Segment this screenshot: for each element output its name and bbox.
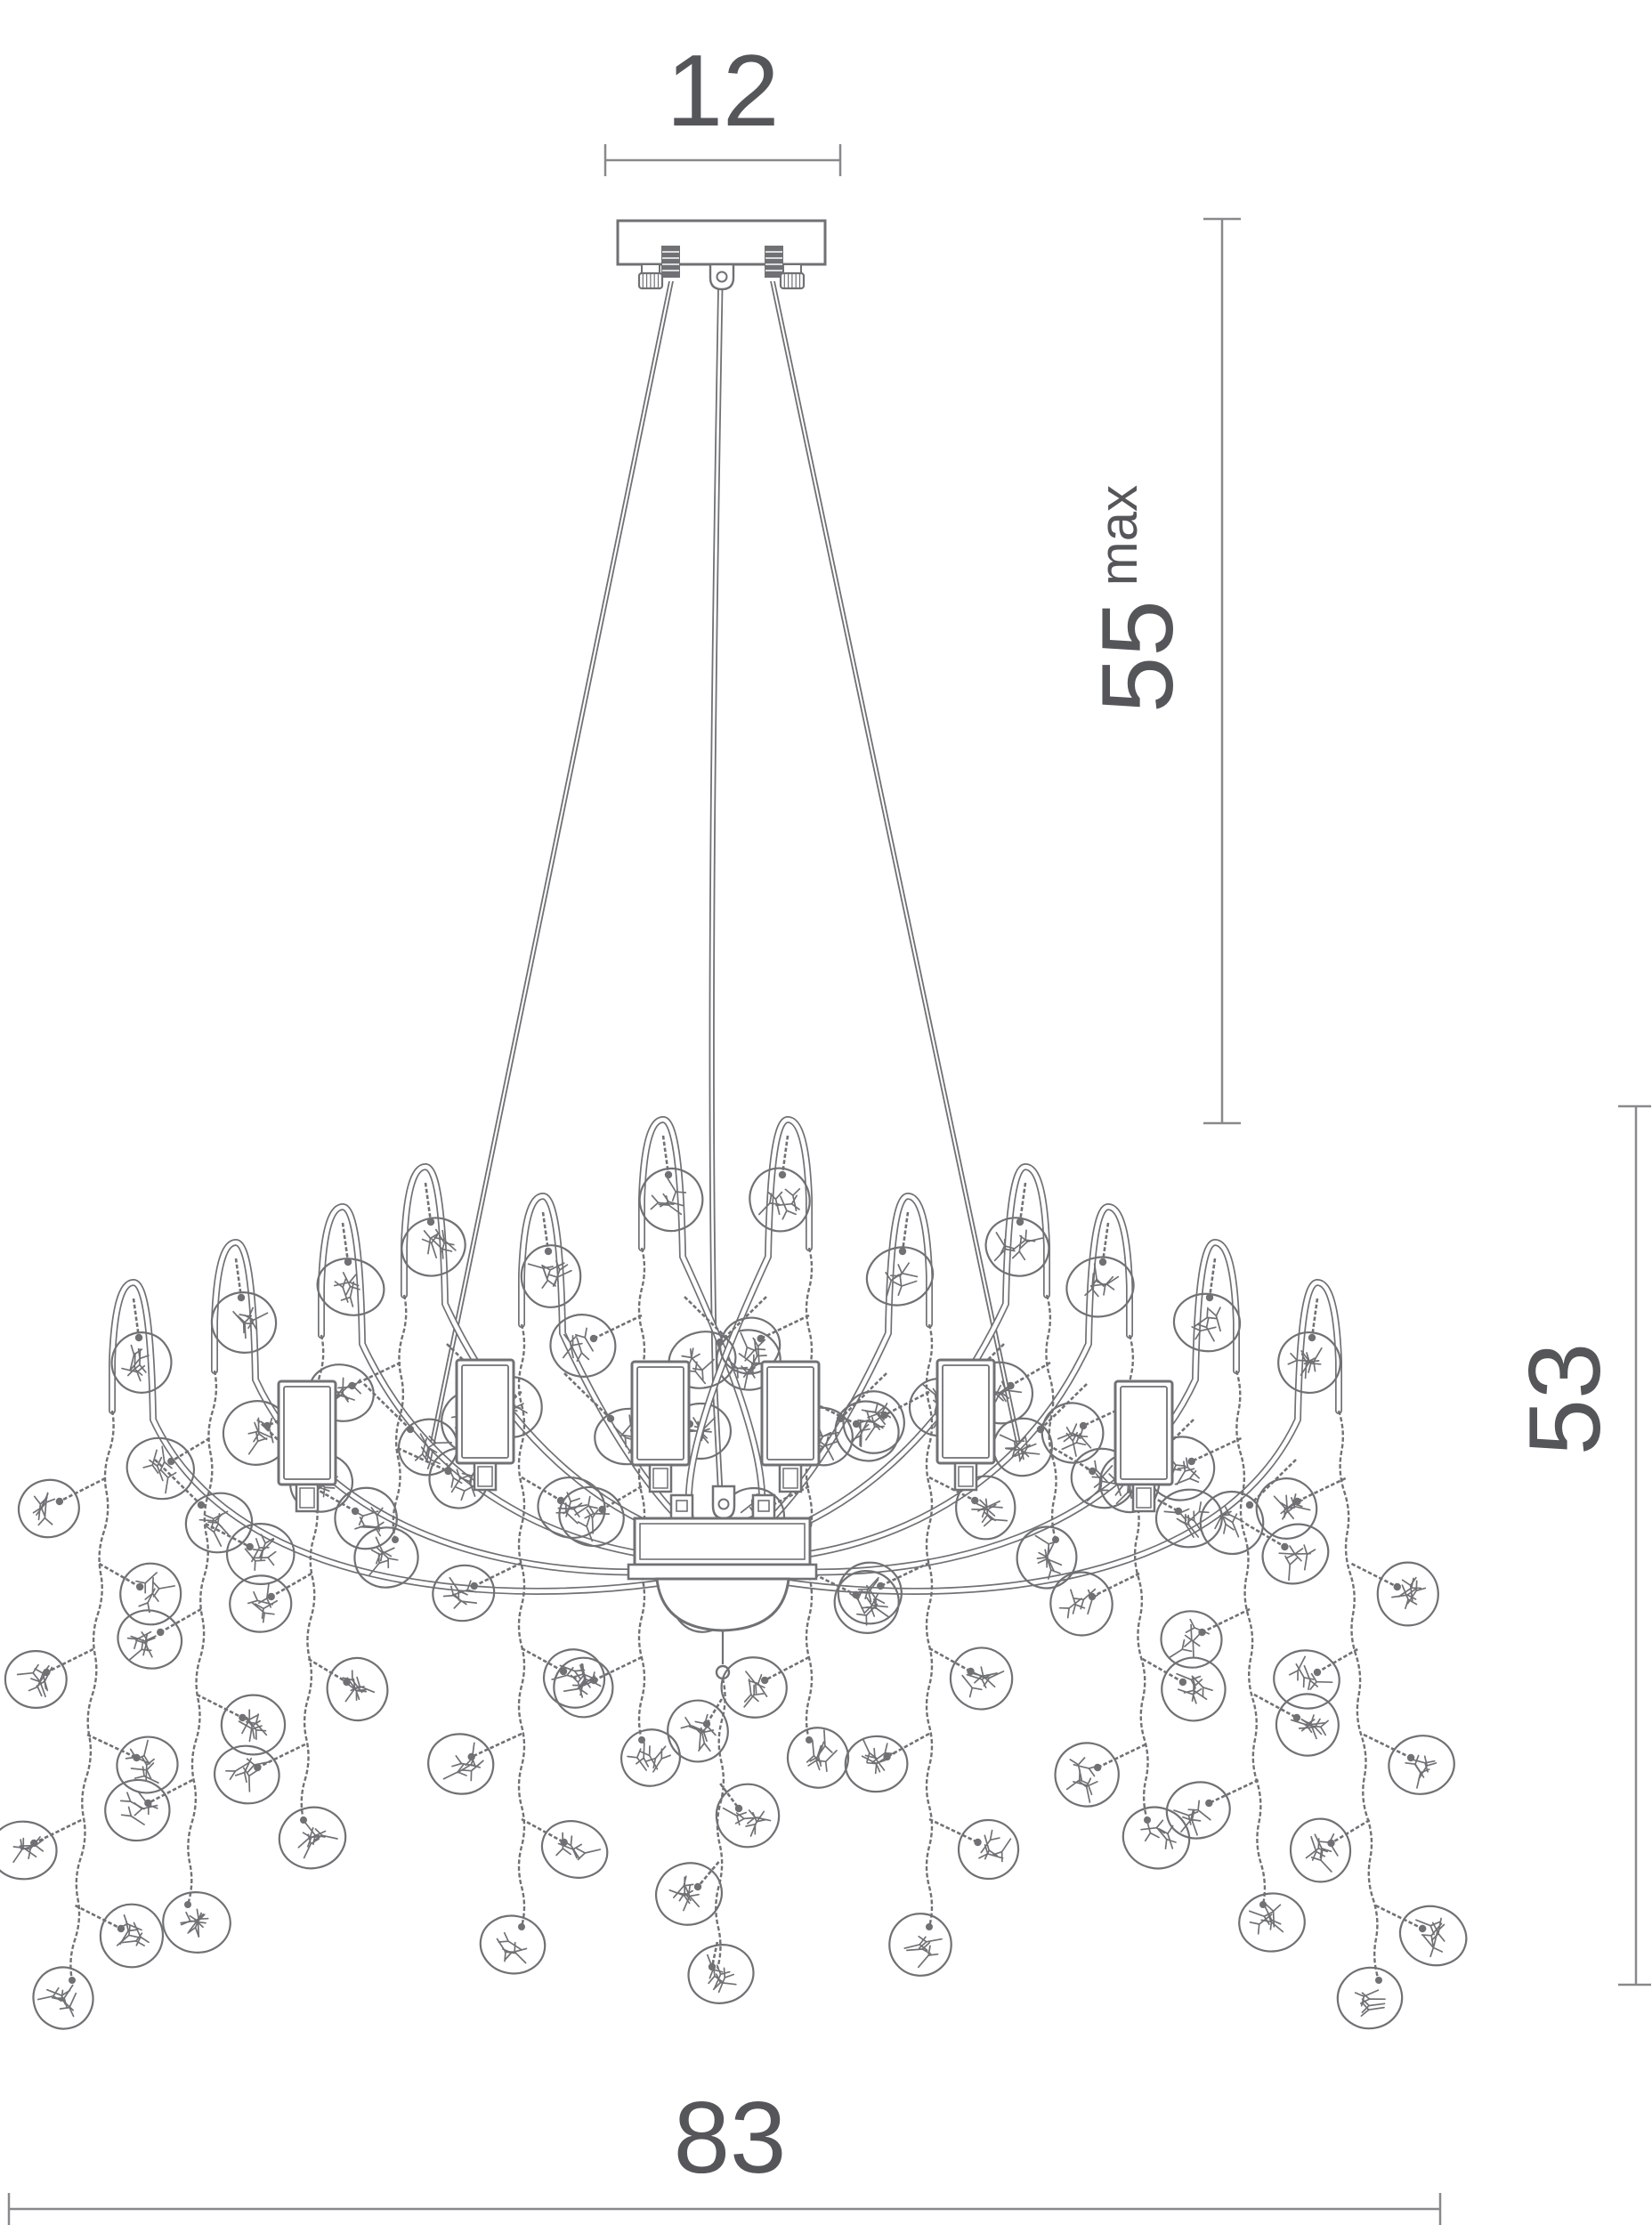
crystal-flower (0, 1820, 58, 1880)
crystal-flower (1157, 1607, 1225, 1671)
dim-fixture-height: 53 (1509, 1106, 1651, 1985)
crystal-flower (1333, 1963, 1406, 2034)
crystal-flower (424, 1729, 498, 1800)
dim-label-suspension-max: 55max (1081, 485, 1194, 713)
crystal-flower (945, 1643, 1016, 1714)
technical-drawing-page: 12 55max 53 83 (0, 0, 1652, 2225)
dim-suffix-max: max (1089, 485, 1148, 586)
crystal-flower (1377, 1561, 1439, 1626)
crystal-flower (712, 1780, 782, 1851)
central-cascade (648, 1679, 782, 2009)
dim-label-canopy-width: 12 (667, 35, 780, 148)
crystal-flower (551, 1655, 617, 1720)
crystal-flower (887, 1912, 953, 1978)
chandelier-arm (701, 1242, 1347, 1954)
crystal-flower (781, 1721, 854, 1795)
crystal-flower (320, 1651, 394, 1727)
crystal-flower (661, 1694, 735, 1768)
crystal-flower (476, 1911, 550, 1978)
crystal-flower (96, 1900, 166, 1971)
dim-value-55: 55 (1081, 600, 1194, 713)
suspension-cables (427, 281, 1024, 1492)
crystal-flower (537, 1642, 612, 1716)
crystal-flower (273, 1800, 352, 1874)
chandelier-line-art (0, 221, 1475, 2035)
crystal-flower (160, 1889, 232, 1955)
crystal-flower (1392, 1897, 1475, 1975)
crystal-flower (844, 1735, 909, 1793)
crystal-flower (112, 1732, 182, 1797)
crystal-flower (1115, 1799, 1196, 1876)
dim-suspension-height: 55max (1081, 219, 1241, 1123)
crystal-flower (1270, 1646, 1343, 1713)
crystal-flower (1254, 1516, 1336, 1593)
crystal-flower (957, 1818, 1020, 1881)
lamp-socket (937, 1360, 994, 1490)
crystal-flower (111, 1603, 189, 1676)
central-hub (628, 1486, 816, 1679)
dimension-annotations: 12 55max 53 83 (9, 35, 1651, 2225)
chandelier-arm (102, 1242, 750, 1955)
crystal-flower (1289, 1816, 1353, 1883)
crystal-flower (27, 1961, 100, 2035)
crystal-flower (1162, 1776, 1235, 1844)
crystal-flower (522, 1245, 580, 1307)
crystal-flower (102, 1776, 173, 1843)
crystal-flower (211, 1742, 283, 1808)
crystal-flower (1237, 1890, 1308, 1954)
crystal-flower (12, 1473, 85, 1544)
lamp-socket (457, 1360, 514, 1490)
crystal-flower (1154, 1649, 1234, 1729)
crystal-flower (1384, 1731, 1459, 1800)
crystal-flower (4, 1650, 68, 1709)
dim-label-fixture-width: 83 (674, 2082, 787, 2195)
dim-top-width: 12 (605, 35, 840, 176)
lamp-socket (1115, 1381, 1172, 1511)
dim-fixture-width: 83 (9, 2082, 1440, 2225)
crystal-flower (614, 1722, 687, 1793)
ceiling-canopy (618, 221, 825, 289)
lamp-socket (279, 1381, 336, 1511)
crystal-flower (718, 1655, 790, 1721)
dim-label-fixture-height: 53 (1509, 1343, 1622, 1456)
chandelier-dimension-drawing: 12 55max 53 83 (0, 0, 1652, 2225)
crystal-flower (534, 1812, 615, 1887)
crystal-flower (1268, 1686, 1347, 1764)
crystal-flower (229, 1574, 293, 1634)
crystal-flower (1050, 1738, 1123, 1811)
